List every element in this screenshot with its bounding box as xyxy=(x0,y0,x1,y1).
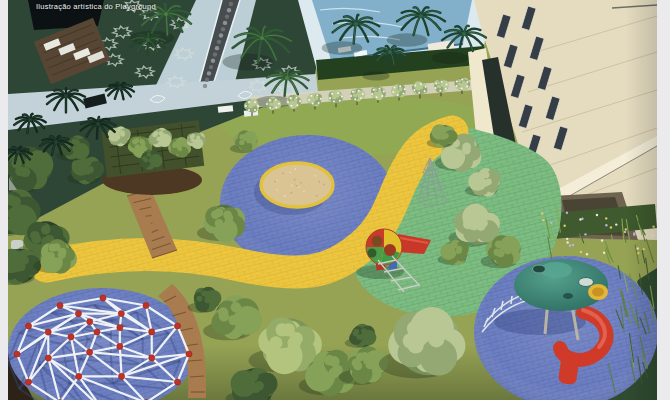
frame-left xyxy=(0,0,8,400)
rendering-screenshot: Ilustração artística do Playground xyxy=(0,0,670,400)
right-vignette xyxy=(625,0,657,400)
frame-right xyxy=(657,0,670,400)
pergola xyxy=(101,120,206,195)
caption: Ilustração artística do Playground xyxy=(36,2,156,11)
